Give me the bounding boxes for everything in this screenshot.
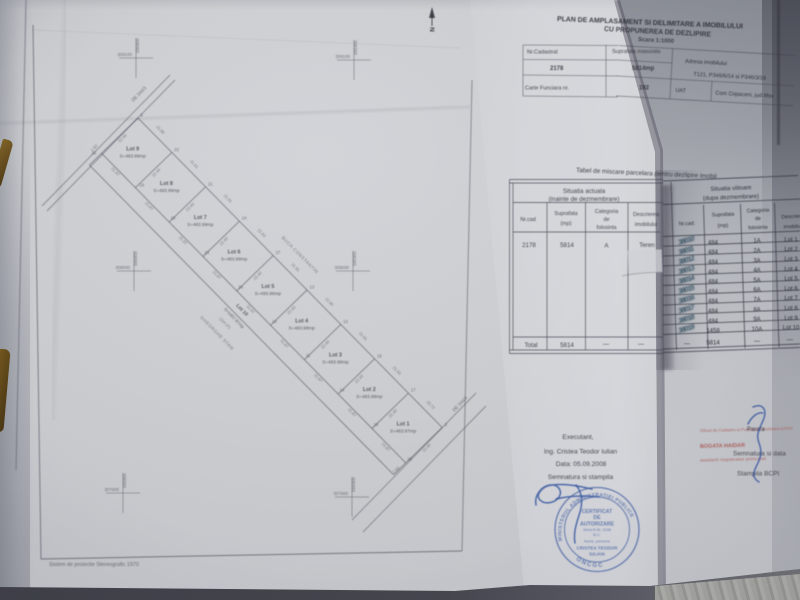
svg-text:Nr.cad: Nr.cad xyxy=(520,217,536,223)
svg-text:Descrierea: Descrierea xyxy=(633,212,659,218)
svg-text:UAT: UAT xyxy=(675,88,687,95)
svg-text:Categoria: Categoria xyxy=(747,208,770,215)
svg-text:22.40: 22.40 xyxy=(354,373,365,384)
svg-text:Stampila BCPI: Stampila BCPI xyxy=(737,471,779,478)
svg-text:Com Copaceni, jud.Ilfov: Com Copaceni, jud.Ilfov xyxy=(715,90,774,99)
svg-text:22.40: 22.40 xyxy=(387,407,398,418)
svg-text:S=483.99mp: S=483.99mp xyxy=(221,257,248,262)
svg-text:Lot 9: Lot 9 xyxy=(784,316,798,322)
svg-text:(mp): (mp) xyxy=(718,223,729,229)
svg-text:Lot 2: Lot 2 xyxy=(784,247,798,253)
svg-text:Total: Total xyxy=(524,342,537,349)
svg-text:7A: 7A xyxy=(753,298,760,304)
svg-text:21.60: 21.60 xyxy=(324,296,335,307)
svg-text:21.87: 21.87 xyxy=(313,373,324,384)
svg-text:Lot 1: Lot 1 xyxy=(397,422,410,428)
svg-text:Semnatura si stampila: Semnatura si stampila xyxy=(548,474,614,481)
svg-text:imobilulu: imobilulu xyxy=(784,224,800,231)
svg-text:CRISTEA TEODOR: CRISTEA TEODOR xyxy=(577,546,619,551)
svg-text:Lot 6: Lot 6 xyxy=(228,250,241,256)
svg-text:21.87: 21.87 xyxy=(178,235,189,246)
svg-text:20.72: 20.72 xyxy=(426,400,437,411)
svg-text:—: — xyxy=(787,338,793,344)
svg-text:27: 27 xyxy=(276,250,281,255)
svg-text:21.50: 21.50 xyxy=(392,365,403,376)
svg-text:Semnatura si data: Semnatura si data xyxy=(733,451,786,458)
svg-text:10: 10 xyxy=(272,319,277,324)
svg-text:484: 484 xyxy=(708,299,719,305)
svg-text:17: 17 xyxy=(411,388,416,393)
svg-text:Lot 9: Lot 9 xyxy=(126,146,139,152)
svg-text:16: 16 xyxy=(374,422,379,427)
svg-text:Scara 1:1000: Scara 1:1000 xyxy=(638,37,674,45)
svg-text:1A: 1A xyxy=(753,239,760,245)
svg-text:S=483.98mp: S=483.98mp xyxy=(356,394,383,399)
svg-text:19: 19 xyxy=(139,183,144,188)
svg-text:Adresa imobilului: Adresa imobilului xyxy=(685,59,727,67)
svg-text:folosinta: folosinta xyxy=(596,225,616,231)
svg-text:12: 12 xyxy=(343,319,348,324)
svg-text:14: 14 xyxy=(340,388,345,393)
svg-text:11: 11 xyxy=(306,353,311,358)
svg-text:21.87: 21.87 xyxy=(144,201,155,212)
svg-text:21.63: 21.63 xyxy=(257,228,268,239)
svg-text:imobilului: imobilului xyxy=(635,222,657,228)
svg-text:484: 484 xyxy=(708,280,719,286)
svg-text:2178: 2178 xyxy=(550,66,564,72)
svg-text:21.88: 21.88 xyxy=(155,124,166,135)
svg-text:S=483.98mp: S=483.98mp xyxy=(322,360,349,365)
svg-text:Lot 10: Lot 10 xyxy=(783,326,800,332)
svg-text:folosinta: folosinta xyxy=(748,225,768,232)
svg-text:22.40: 22.40 xyxy=(218,235,229,246)
svg-text:26: 26 xyxy=(238,284,243,289)
svg-text:6A: 6A xyxy=(753,288,760,294)
svg-text:Sistem de proiectie Stereogra: Sistem de proiectie Stereografic 1970 xyxy=(49,562,139,568)
svg-text:24: 24 xyxy=(242,216,247,221)
svg-text:(194.37): (194.37) xyxy=(218,317,231,330)
svg-text:21.61: 21.61 xyxy=(223,193,234,204)
svg-text:5814mp: 5814mp xyxy=(632,66,655,72)
svg-text:484: 484 xyxy=(708,270,719,276)
svg-text:21.61: 21.61 xyxy=(189,159,200,170)
svg-text:S=483.97mp: S=483.97mp xyxy=(390,429,417,434)
svg-text:S=483.99mp: S=483.99mp xyxy=(153,188,180,193)
svg-text:N: N xyxy=(428,27,435,32)
svg-text:21.87: 21.87 xyxy=(110,166,121,177)
svg-text:22.40: 22.40 xyxy=(185,201,196,212)
svg-text:S=483.98mp: S=483.98mp xyxy=(289,325,316,330)
svg-text:22.40: 22.40 xyxy=(421,442,432,453)
svg-text:Data: 05.09.2008: Data: 05.09.2008 xyxy=(556,461,607,468)
svg-text:de: de xyxy=(755,216,761,222)
svg-text:18: 18 xyxy=(407,456,412,461)
svg-text:308000: 308000 xyxy=(115,265,130,270)
svg-text:585800: 585800 xyxy=(135,38,140,53)
svg-text:Nr.Cadastral: Nr.Cadastral xyxy=(527,50,558,56)
svg-text:A: A xyxy=(604,243,609,250)
svg-text:308000: 308000 xyxy=(334,265,349,270)
svg-text:4A: 4A xyxy=(753,268,760,274)
svg-text:585900: 585900 xyxy=(352,251,357,266)
svg-text:5A: 5A xyxy=(753,278,760,284)
svg-text:22.40: 22.40 xyxy=(117,132,128,143)
svg-text:Lot 8: Lot 8 xyxy=(784,306,798,312)
svg-text:B.C.: B.C. xyxy=(593,532,601,537)
svg-text:307900: 307900 xyxy=(104,487,119,492)
svg-text:308100: 308100 xyxy=(335,54,350,59)
svg-text:Lot 5: Lot 5 xyxy=(261,284,274,290)
svg-text:484: 484 xyxy=(708,250,719,256)
svg-text:Lot 1: Lot 1 xyxy=(784,237,798,243)
svg-text:307900: 307900 xyxy=(333,491,348,496)
svg-text:IULIAN: IULIAN xyxy=(589,552,605,557)
svg-text:484: 484 xyxy=(708,319,719,325)
svg-text:585800: 585800 xyxy=(133,251,138,266)
svg-text:Teren: Teren xyxy=(639,242,655,249)
svg-text:S=483.99mp: S=483.99mp xyxy=(187,222,214,227)
svg-text:Situatia viitoare: Situatia viitoare xyxy=(710,185,752,193)
svg-text:—: — xyxy=(684,342,690,348)
svg-text:7.50: 7.50 xyxy=(391,465,401,475)
svg-text:484: 484 xyxy=(708,309,719,315)
svg-text:—: — xyxy=(603,341,610,348)
svg-text:—: — xyxy=(754,339,760,345)
svg-text:Tabel de miscare parcelara pen: Tabel de miscare parcelara pentru dezlip… xyxy=(576,167,717,180)
svg-text:S=483.96mp: S=483.96mp xyxy=(255,291,282,296)
svg-text:22.40: 22.40 xyxy=(151,167,162,178)
svg-text:Categoria: Categoria xyxy=(595,209,618,215)
svg-text:5814: 5814 xyxy=(560,342,574,349)
svg-text:22.40: 22.40 xyxy=(286,304,297,315)
svg-text:—: — xyxy=(638,341,645,348)
svg-text:585900: 585900 xyxy=(351,477,356,492)
svg-text:8A: 8A xyxy=(753,307,760,313)
svg-text:AUTORIZARE: AUTORIZARE xyxy=(580,522,614,528)
svg-text:9A: 9A xyxy=(753,317,760,323)
svg-text:Lot 8: Lot 8 xyxy=(160,181,173,187)
svg-text:484: 484 xyxy=(708,240,719,246)
svg-text:5814: 5814 xyxy=(560,242,574,249)
svg-text:Nr.cad.: Nr.cad. xyxy=(679,221,696,228)
svg-text:15: 15 xyxy=(377,353,382,358)
svg-text:Lot 3: Lot 3 xyxy=(784,257,798,263)
svg-text:21.61: 21.61 xyxy=(290,262,301,273)
svg-text:Lot 3: Lot 3 xyxy=(329,353,342,359)
svg-text:Parafa: Parafa xyxy=(747,427,765,433)
svg-text:Lot 5: Lot 5 xyxy=(784,277,798,283)
svg-text:Lot 6: Lot 6 xyxy=(784,286,798,292)
svg-text:Suprafata: Suprafata xyxy=(712,212,735,219)
svg-text:Nume, prenume: Nume, prenume xyxy=(584,540,610,544)
svg-text:1458: 1458 xyxy=(706,329,720,335)
svg-text:13: 13 xyxy=(310,285,315,290)
svg-text:10A: 10A xyxy=(752,327,763,333)
svg-text:Lot 7: Lot 7 xyxy=(194,215,207,221)
svg-text:3A: 3A xyxy=(753,258,760,264)
svg-text:21.87: 21.87 xyxy=(347,407,358,418)
svg-text:(inainte de dezmembrare): (inainte de dezmembrare) xyxy=(549,196,620,203)
svg-text:de: de xyxy=(604,217,610,223)
svg-text:BOGATA HAIDAR: BOGATA HAIDAR xyxy=(700,443,745,450)
svg-text:Descrierea: Descrierea xyxy=(781,213,800,220)
svg-text:23: 23 xyxy=(205,250,210,255)
svg-text:21.87: 21.87 xyxy=(279,338,290,349)
svg-text:2A: 2A xyxy=(753,249,760,255)
svg-text:Suprafata: Suprafata xyxy=(554,211,577,217)
svg-text:585900: 585900 xyxy=(353,40,358,55)
svg-text:484: 484 xyxy=(708,260,719,266)
svg-text:21.87: 21.87 xyxy=(381,441,392,452)
svg-text:2178: 2178 xyxy=(522,242,536,249)
svg-text:484: 484 xyxy=(708,289,719,295)
svg-text:S=483.99mp: S=483.99mp xyxy=(120,153,147,158)
svg-text:Situatia actuala: Situatia actuala xyxy=(563,188,606,195)
svg-text:308100: 308100 xyxy=(117,52,132,57)
svg-text:Suprafata masurata: Suprafata masurata xyxy=(612,49,661,55)
svg-text:5814: 5814 xyxy=(706,341,720,347)
svg-text:22.40: 22.40 xyxy=(320,339,331,350)
svg-text:Ing. Cristea Teodor Iulian: Ing. Cristea Teodor Iulian xyxy=(544,449,618,456)
svg-text:20: 20 xyxy=(171,216,176,221)
svg-text:Lot 2: Lot 2 xyxy=(363,387,376,393)
svg-text:Executant,: Executant, xyxy=(562,434,593,441)
svg-text:T121, P346/6/14 si P346/3/16: T121, P346/6/14 si P346/3/16 xyxy=(693,72,766,82)
svg-text:22: 22 xyxy=(174,147,179,152)
svg-text:Lot 4: Lot 4 xyxy=(295,318,308,324)
svg-text:Lot 7: Lot 7 xyxy=(784,296,798,302)
svg-text:192: 192 xyxy=(639,86,650,92)
svg-text:22.40: 22.40 xyxy=(252,270,263,281)
svg-text:25: 25 xyxy=(92,150,97,155)
svg-text:21: 21 xyxy=(208,181,213,186)
svg-text:(mp): (mp) xyxy=(560,221,571,227)
svg-text:21.87: 21.87 xyxy=(212,269,223,280)
svg-text:GHEORGHE STAN: GHEORGHE STAN xyxy=(199,315,235,351)
svg-text:21.61: 21.61 xyxy=(358,331,369,342)
svg-text:DE: DE xyxy=(593,515,601,521)
svg-text:Lot 4: Lot 4 xyxy=(784,267,798,273)
svg-text:Carte Funciara nr.: Carte Funciara nr. xyxy=(525,86,569,92)
svg-text:585800: 585800 xyxy=(122,473,127,488)
